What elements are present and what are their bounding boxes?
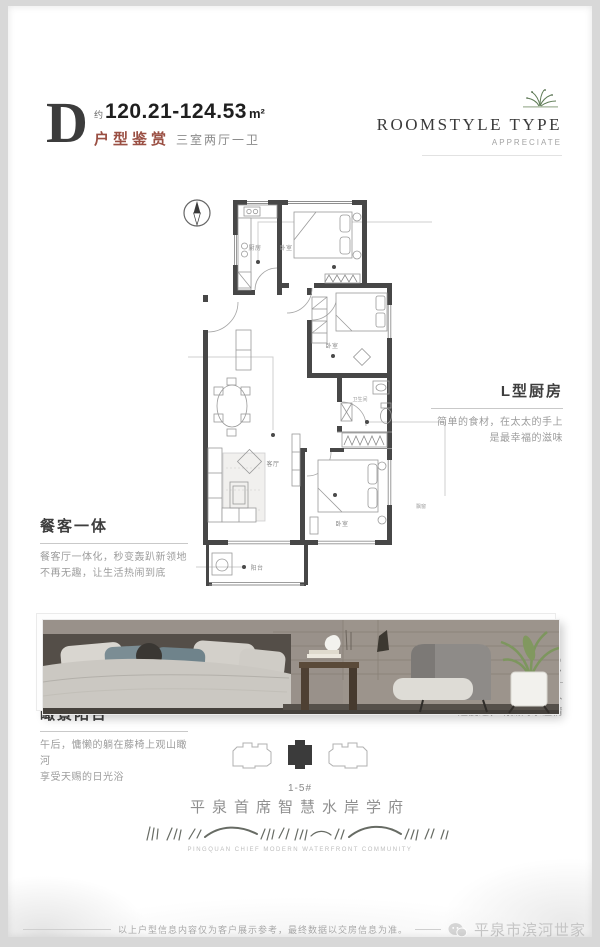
callout-l-kitchen: L型厨房 简单的食材，在太太的手上 是最幸福的滋味 [431, 380, 563, 447]
grass-icon [518, 88, 562, 108]
project-name: 平泉首席智慧水岸学府 [0, 796, 600, 817]
label-bathroom: 卫生间 [352, 396, 367, 403]
label-bedroom-bottom: 卧室 [335, 520, 348, 528]
floor-plan-svg: 厨房 卧室 卧室 卫生间 客厅 卧室 阳台 飘窗 [170, 190, 430, 595]
callout-dining-living: 餐客一体 餐客厅一体化，秒变轰趴新领地 不再无趣，让生活热闹到底 [40, 515, 188, 582]
label-bedroom-top: 卧室 [279, 244, 292, 252]
callout-title: L型厨房 [431, 380, 563, 409]
callout-line: 是最幸福的滋味 [431, 431, 563, 447]
area-block: 约 120.21-124.53 m² 户型鉴赏 三室两厅一卫 [94, 100, 265, 149]
wechat-icon [448, 922, 467, 938]
type-label: 户型鉴赏 [94, 128, 170, 149]
area-value: 120.21-124.53 [105, 100, 247, 124]
label-bay-window: 飘窗 [416, 503, 426, 510]
footer-bar: 以上户型信息内容仅为客户展示参考，最终数据以交房信息为准。 平泉市滨河世家 [0, 919, 586, 940]
project-block: 平泉首席智慧水岸学府 PINGQUAN CHIEF MODERN WATERFR… [0, 796, 600, 853]
brand-title: ROOMSTYLE TYPE [377, 115, 562, 135]
footer-divider-right [415, 929, 441, 930]
floor-plan-poster: D 约 120.21-124.53 m² 户型鉴赏 三室两厅一卫 ROOMSTY… [0, 0, 600, 947]
brand-block: ROOMSTYLE TYPE APPRECIATE [377, 88, 562, 156]
disclaimer-text: 以上户型信息内容仅为客户展示参考，最终数据以交房信息为准。 [118, 923, 408, 936]
watermark-text: 平泉市滨河世家 [474, 919, 586, 940]
callout-title: 餐客一体 [40, 515, 188, 544]
callout-line: 不再无趣，让生活热闹到底 [40, 566, 188, 582]
interior-photo [42, 619, 560, 715]
callout-line: 简单的食材，在太太的手上 [431, 415, 563, 431]
building-number: 1-5# [0, 783, 600, 794]
floor-plan-section: 厨房 卧室 卧室 卫生间 客厅 卧室 阳台 飘窗 L型厨房 简单的食材，在太太的… [0, 185, 600, 615]
compass-icon [184, 200, 210, 226]
type-desc: 三室两厅一卫 [176, 131, 260, 148]
label-living: 客厅 [266, 460, 279, 468]
area-unit: m² [249, 106, 265, 121]
brand-subtitle: APPRECIATE [377, 138, 562, 147]
building-block: 1-5# [0, 733, 600, 794]
interior-photo-art [43, 620, 559, 714]
project-caption-en: PINGQUAN CHIEF MODERN WATERFRONT COMMUNI… [0, 847, 600, 853]
brand-underline [422, 155, 562, 156]
label-bedroom-mid: 卧室 [325, 342, 338, 350]
callout-line: 餐客厅一体化，秒变轰趴新领地 [40, 550, 188, 566]
building-footprint-icon [225, 733, 375, 775]
label-balcony: 阳台 [250, 564, 263, 572]
area-prefix: 约 [94, 108, 103, 121]
label-kitchen: 厨房 [248, 244, 261, 252]
plan-letter: D [46, 94, 88, 152]
footer-divider-left [23, 929, 111, 930]
wave-decoration [145, 821, 455, 845]
